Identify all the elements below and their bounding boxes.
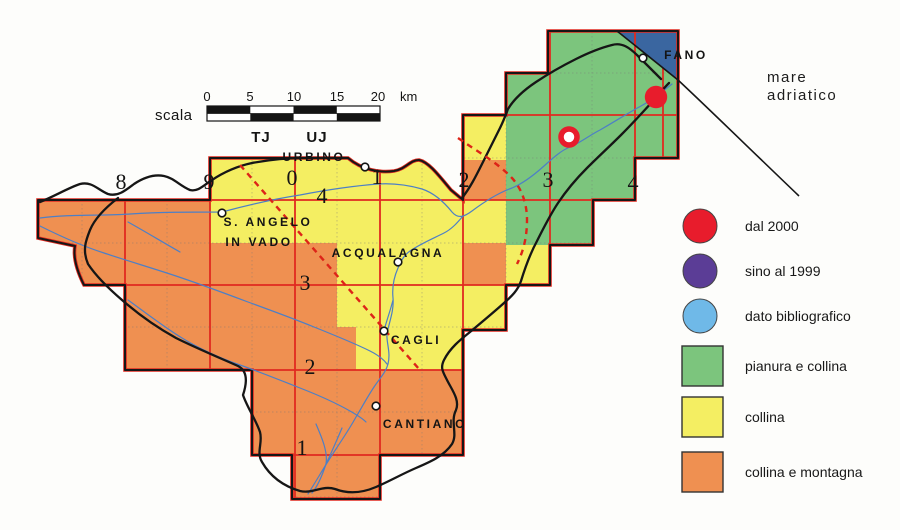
legend-item-dato-bibliografico: dato bibliografico (683, 299, 851, 333)
atlas-map-page: URBINO S. ANGELO IN VADO ACQUALAGNA CAGL… (0, 0, 900, 530)
scale-bar-graphic (207, 106, 380, 121)
grid-col-label-4: 4 (628, 170, 639, 195)
zone-montagna-cell-c (463, 243, 506, 285)
legend-item-dal-2000: dal 2000 (683, 209, 799, 243)
grid-row-label-4: 4 (317, 183, 328, 208)
grid-col-label-9: 9 (204, 169, 215, 194)
sea-name: mare adriatico (767, 69, 837, 104)
record-marker-open (561, 129, 577, 145)
zone-montagna-cantiano-block (252, 370, 463, 499)
label-cagli: CAGLI (391, 333, 441, 347)
scale-tick-15: 15 (330, 89, 344, 104)
label-fano: FANO (664, 48, 708, 62)
grid-row-label-1: 1 (297, 435, 308, 460)
town-dot-cagli (380, 327, 388, 335)
scale-tick-20: 20 (371, 89, 385, 104)
label-acqualagna: ACQUALAGNA (332, 246, 445, 260)
legend-label-sino-al-1999: sino al 1999 (745, 263, 821, 279)
scale-caption: scala (155, 107, 193, 124)
record-marker-filled (645, 86, 667, 108)
scale-unit: km (400, 89, 417, 104)
sea-name-line1: mare (767, 69, 807, 86)
utm-zone-uj: UJ (306, 129, 327, 146)
grid-col-label-8: 8 (116, 169, 127, 194)
legend-square-yellow (682, 397, 723, 437)
legend-circle-red (683, 209, 717, 243)
legend-item-pianura-e-collina: pianura e collina (682, 346, 847, 386)
legend-label-pianura-e-collina: pianura e collina (745, 358, 847, 374)
legend-label-collina: collina (745, 409, 785, 425)
distribution-map: URBINO S. ANGELO IN VADO ACQUALAGNA CAGL… (0, 0, 900, 530)
scale-tick-10: 10 (287, 89, 301, 104)
legend-square-green (682, 346, 723, 386)
grid-col-label-0: 0 (287, 165, 298, 190)
grid-row-label-3: 3 (300, 270, 311, 295)
legend-label-dal-2000: dal 2000 (745, 218, 799, 234)
legend-label-collina-e-montagna: collina e montagna (745, 464, 863, 480)
legend-circle-light-blue (683, 299, 717, 333)
label-sant-angelo-2: IN VADO (225, 235, 292, 249)
grid-col-label-2: 2 (459, 167, 470, 192)
town-dot-urbino (361, 163, 369, 171)
scale-tick-0: 0 (203, 89, 210, 104)
legend-item-collina-e-montagna: collina e montagna (682, 452, 863, 492)
zone-collina-cell-ne (463, 115, 506, 160)
legend-square-orange (682, 452, 723, 492)
label-sant-angelo-1: S. ANGELO (224, 215, 313, 229)
legend-circle-purple (683, 254, 717, 288)
grid-row-label-2: 2 (305, 354, 316, 379)
zone-regions (38, 31, 678, 499)
label-cantiano: CANTIANO (383, 417, 467, 431)
label-urbino: URBINO (283, 150, 346, 164)
grid-col-label-3: 3 (543, 167, 554, 192)
scale-tick-5: 5 (246, 89, 253, 104)
scale-bar: scala 0 5 10 15 20 km TJ UJ (155, 89, 417, 146)
sea-name-line2: adriatico (767, 87, 837, 104)
grid-col-label-1: 1 (372, 164, 383, 189)
legend-label-dato-bibliografico: dato bibliografico (745, 308, 851, 324)
town-dot-cantiano (372, 402, 380, 410)
zone-collina-cell-e (506, 245, 550, 285)
legend-item-collina: collina (682, 397, 785, 437)
utm-zone-tj: TJ (251, 129, 271, 146)
legend-item-sino-al-1999: sino al 1999 (683, 254, 821, 288)
legend: dal 2000 sino al 1999 dato bibliografico… (682, 209, 863, 492)
town-dot-fano (639, 54, 647, 62)
